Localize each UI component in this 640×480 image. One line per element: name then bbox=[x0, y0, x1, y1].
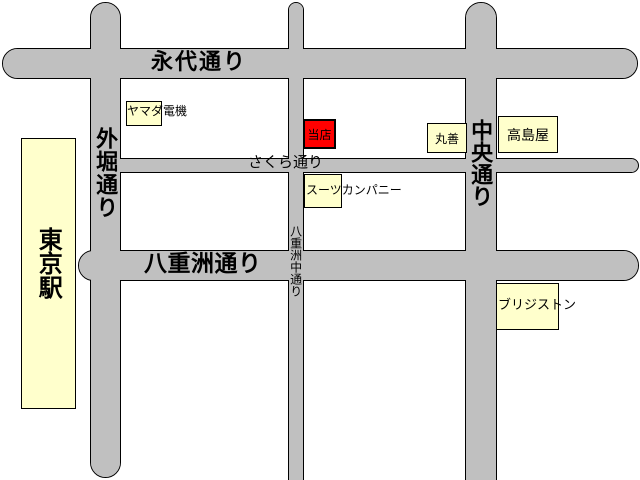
suit-company-label: スーツカンパニー bbox=[306, 184, 402, 197]
road-label-yaesu-naka-dori: 八重洲中通り bbox=[289, 225, 302, 297]
road-sakura-dori-fill bbox=[118, 159, 637, 172]
access-map: 当店 丸善 高島屋 永代通り 八重洲通り さくら通り 外堀通り 中央通り 八重洲… bbox=[0, 0, 640, 480]
road-label-sakura-dori: さくら通り bbox=[248, 155, 323, 171]
building-maruzen: 丸善 bbox=[427, 123, 467, 153]
yamada-denki-label: ヤマダ電機 bbox=[127, 105, 187, 118]
bridgestone-label: ブリジストン bbox=[498, 299, 576, 313]
road-label-yaesu-dori: 八重洲通り bbox=[144, 252, 262, 276]
road-sotobori-dori-fill bbox=[91, 3, 120, 477]
road-chuo-dori-fill bbox=[466, 3, 496, 480]
road-label-sotobori-dori: 外堀通り bbox=[93, 127, 116, 219]
our-store-label: 当店 bbox=[307, 126, 331, 143]
maruzen-label: 丸善 bbox=[435, 130, 459, 147]
road-label-eitai-dori: 永代通り bbox=[151, 51, 247, 74]
building-our-store: 当店 bbox=[303, 119, 336, 149]
road-label-chuo-dori: 中央通り bbox=[468, 119, 491, 207]
building-takashimaya: 高島屋 bbox=[498, 116, 558, 153]
takashimaya-label: 高島屋 bbox=[507, 125, 549, 145]
tokyo-station-label: 東京駅 bbox=[35, 227, 60, 299]
